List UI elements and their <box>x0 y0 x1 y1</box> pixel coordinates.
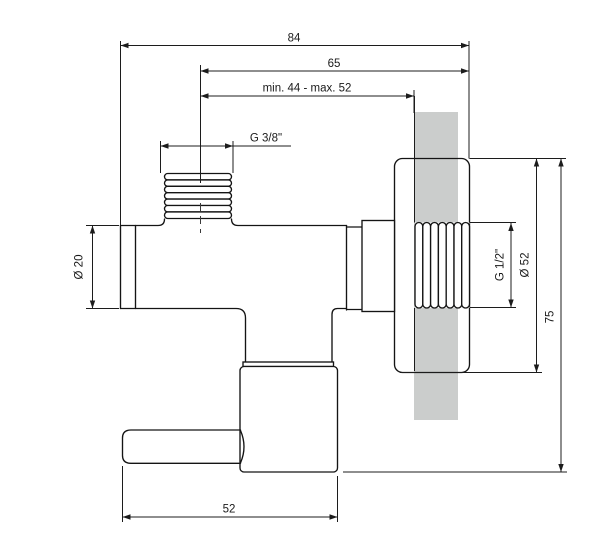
thread-g38-ridges <box>165 174 232 219</box>
drawing-canvas: 84 65 min. 44 - max. 52 G 3/8" Ø 20 G 1/… <box>0 0 608 539</box>
handle-block <box>240 367 338 473</box>
valve-technical-drawing: 84 65 min. 44 - max. 52 G 3/8" Ø 20 G 1/… <box>0 0 608 539</box>
body-collar <box>362 221 395 312</box>
pipe-top-edge <box>121 219 347 226</box>
pipe-end-cap <box>121 226 136 309</box>
dim-body-width-label: 52 <box>223 504 236 516</box>
valve-body <box>121 219 395 362</box>
body-ring <box>347 226 363 311</box>
pipe-bottom-edge <box>121 309 347 363</box>
thread-g12 <box>415 223 470 309</box>
handle-lever <box>123 430 241 463</box>
dim-overall-height-label: 75 <box>545 311 557 324</box>
dim-wall-thread-label: G 1/2" <box>495 249 507 281</box>
dim-rosette-diameter-label: Ø 52 <box>520 253 532 278</box>
dim-overall-width-label: 84 <box>288 33 301 45</box>
dim-inlet-diameter-label: Ø 20 <box>74 255 86 280</box>
dim-wall-distance-label: min. 44 - max. 52 <box>263 83 352 95</box>
dim-top-thread-label: G 3/8" <box>250 133 282 145</box>
thread-g12-ridges <box>415 223 470 309</box>
handle-assembly <box>123 362 338 472</box>
thread-g38 <box>165 174 232 219</box>
dim-thread-end-label: 65 <box>328 58 341 70</box>
